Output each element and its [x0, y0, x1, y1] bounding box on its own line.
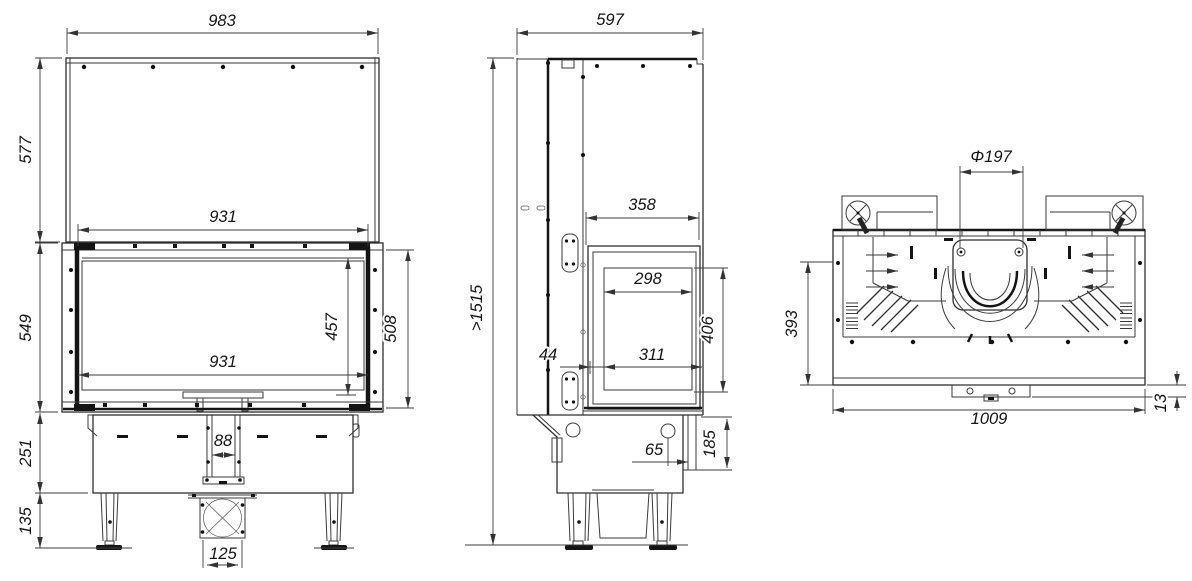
hatch-left	[857, 286, 918, 332]
adjustable-foot	[321, 545, 347, 550]
dim-side-glass-width: 298	[633, 270, 662, 288]
dim-side-depth: 597	[596, 11, 624, 29]
dim-top-body-width: 1009	[971, 410, 1008, 428]
dim-front-base-height: 251	[17, 439, 35, 468]
dim-top-bracket-offset: 13	[1152, 393, 1170, 412]
vent-slots-right	[1120, 303, 1132, 329]
dim-front-glass-width: 931	[209, 353, 237, 371]
mounting-hole	[566, 423, 580, 437]
dim-side-rear-height: 185	[701, 429, 719, 457]
dim-side-door-height: 406	[699, 315, 717, 343]
side-view: 597 >1515 358 298 406 44 311 65 1	[465, 11, 732, 550]
vent-slots-left	[846, 303, 858, 329]
top-front-bracket	[952, 385, 1030, 401]
dim-side-min-height: >1515	[468, 284, 486, 331]
dim-front-top-inner-width: 931	[209, 208, 237, 226]
front-legs	[35, 493, 354, 550]
hatch-right	[1062, 286, 1123, 332]
dim-top-flue-diameter: Φ197	[970, 148, 1012, 166]
front-view: 983 577 931 549 457 508 931 251 135	[17, 12, 414, 568]
dim-front-overall-width: 983	[208, 12, 236, 30]
front-base	[88, 415, 359, 493]
adjustable-foot	[649, 545, 677, 550]
dim-front-firebox-height: 549	[17, 314, 35, 342]
top-flue-collar	[941, 238, 1039, 344]
side-base	[465, 415, 700, 550]
dim-front-leg-height: 135	[17, 506, 35, 534]
adjustable-foot	[96, 545, 122, 550]
drawing-canvas: 983 577 931 549 457 508 931 251 135	[0, 0, 1192, 581]
ash-tray	[183, 392, 263, 398]
dim-front-frame-height: 508	[382, 314, 400, 342]
dim-side-opening-width: 311	[639, 346, 665, 364]
top-body	[833, 230, 1145, 385]
dim-side-rear-offset: 65	[645, 441, 664, 459]
dim-front-panel-height: 577	[17, 135, 35, 163]
side-door	[517, 246, 703, 415]
top-pulley-brackets	[842, 196, 1143, 233]
dim-front-intake-width: 125	[209, 545, 237, 563]
dim-front-glass-height: 457	[323, 312, 341, 340]
dim-top-body-depth: 393	[783, 309, 801, 337]
dim-front-channel-width: 88	[214, 432, 233, 450]
dim-side-rear-width: 358	[628, 196, 656, 214]
fireplace-technical-drawing: 983 577 931 549 457 508 931 251 135	[0, 0, 1192, 581]
top-view: Φ197 393 1009 13	[783, 148, 1186, 428]
mounting-hole	[661, 424, 675, 438]
dim-side-front-gap: 44	[539, 346, 557, 364]
adjustable-foot	[565, 545, 593, 550]
